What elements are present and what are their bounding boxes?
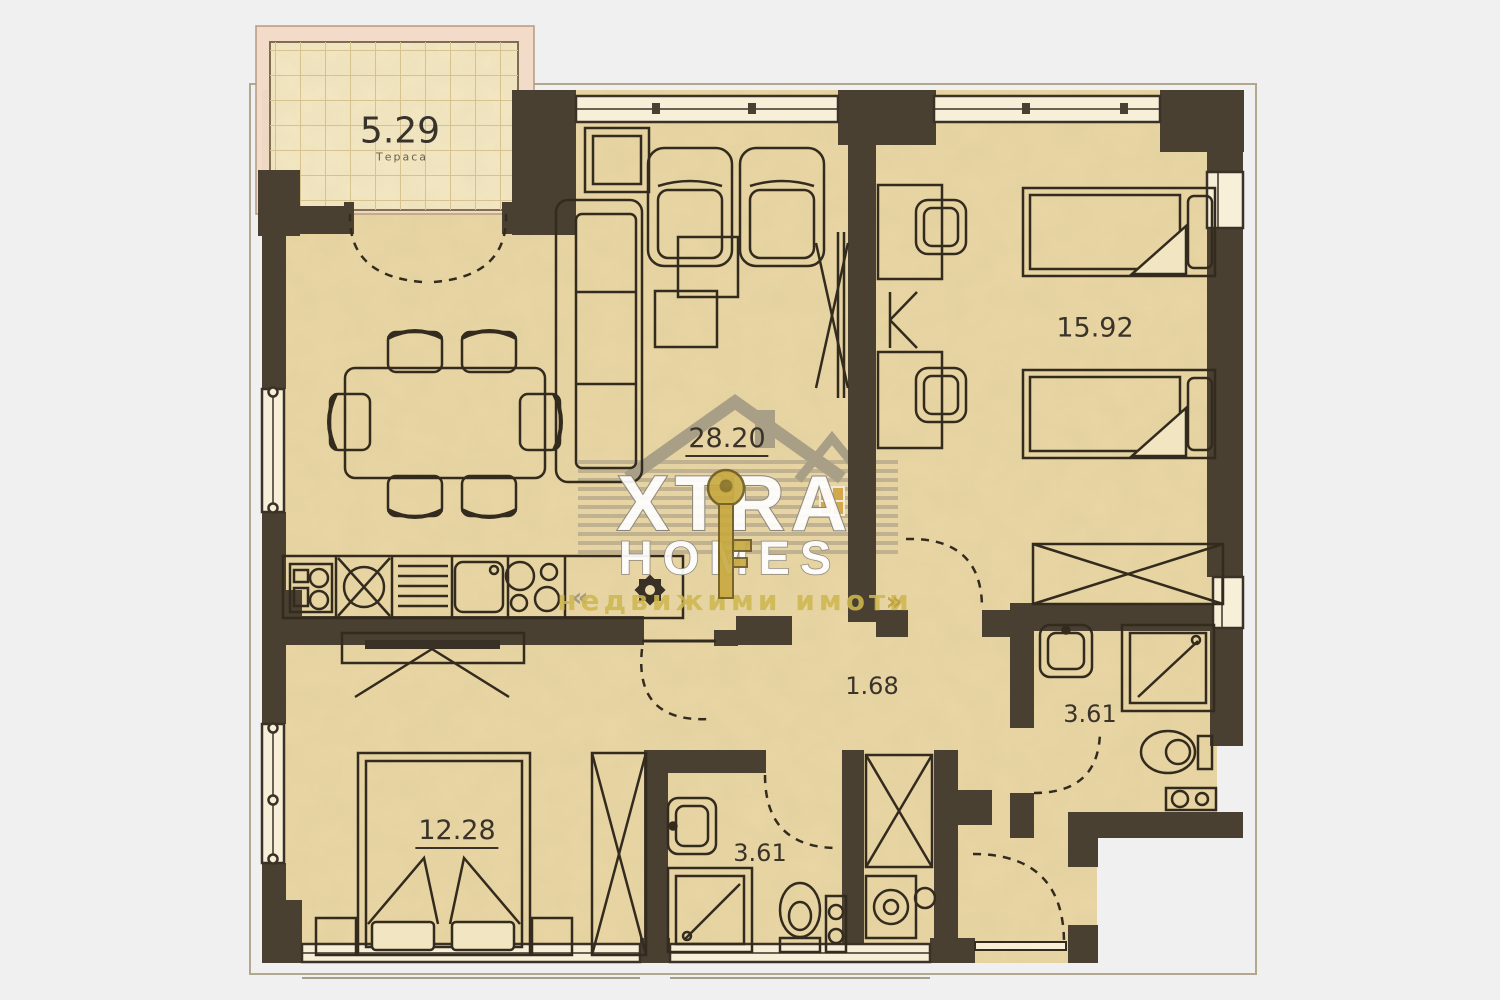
bathroom-right-area-label: 3.61 — [1063, 700, 1116, 728]
entrance-door-leaf — [975, 942, 1066, 950]
bedroom-right-area-label: 15.92 — [1056, 313, 1133, 344]
bedroom-left-area-label: 12.28 — [415, 815, 498, 849]
living-room-area-label: 28.20 — [685, 423, 768, 457]
floor-plan-canvas: XTRA HOMES « недвижими имоти » 5.29 Тера… — [0, 0, 1500, 1000]
corridor-area-label: 1.68 — [845, 672, 898, 700]
terrace-name-label: Тераса — [376, 151, 428, 164]
window-top-left — [576, 96, 838, 122]
window-left-upper — [262, 388, 284, 513]
bathroom-center-area-label: 3.61 — [733, 839, 786, 867]
terrace-area-label: 5.29 — [360, 111, 440, 152]
watermark-tagline: недвижими имоти — [557, 584, 913, 617]
window-left-lower — [262, 724, 284, 864]
window-top-right — [934, 96, 1160, 122]
watermark-right-mark: » — [886, 587, 903, 617]
